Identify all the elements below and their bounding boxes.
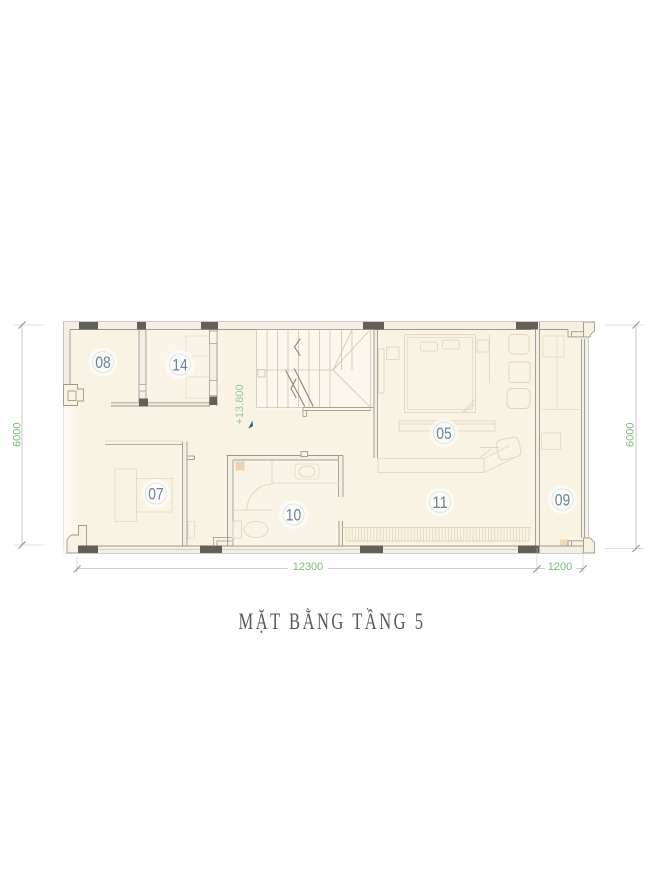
svg-text:10: 10 — [286, 507, 302, 525]
svg-text:12300: 12300 — [293, 561, 324, 573]
svg-text:07: 07 — [148, 486, 164, 504]
svg-text:08: 08 — [95, 354, 111, 372]
svg-text:05: 05 — [436, 425, 452, 443]
svg-text:09: 09 — [555, 492, 571, 510]
svg-text:6000: 6000 — [625, 423, 637, 447]
svg-text:14: 14 — [172, 357, 188, 375]
svg-text:MẶT BẰNG TẦNG 5: MẶT BẰNG TẦNG 5 — [239, 608, 426, 634]
svg-text:+13.800: +13.800 — [234, 384, 246, 424]
svg-text:1200: 1200 — [548, 561, 572, 573]
svg-text:11: 11 — [432, 494, 448, 512]
svg-text:6000: 6000 — [12, 423, 24, 447]
